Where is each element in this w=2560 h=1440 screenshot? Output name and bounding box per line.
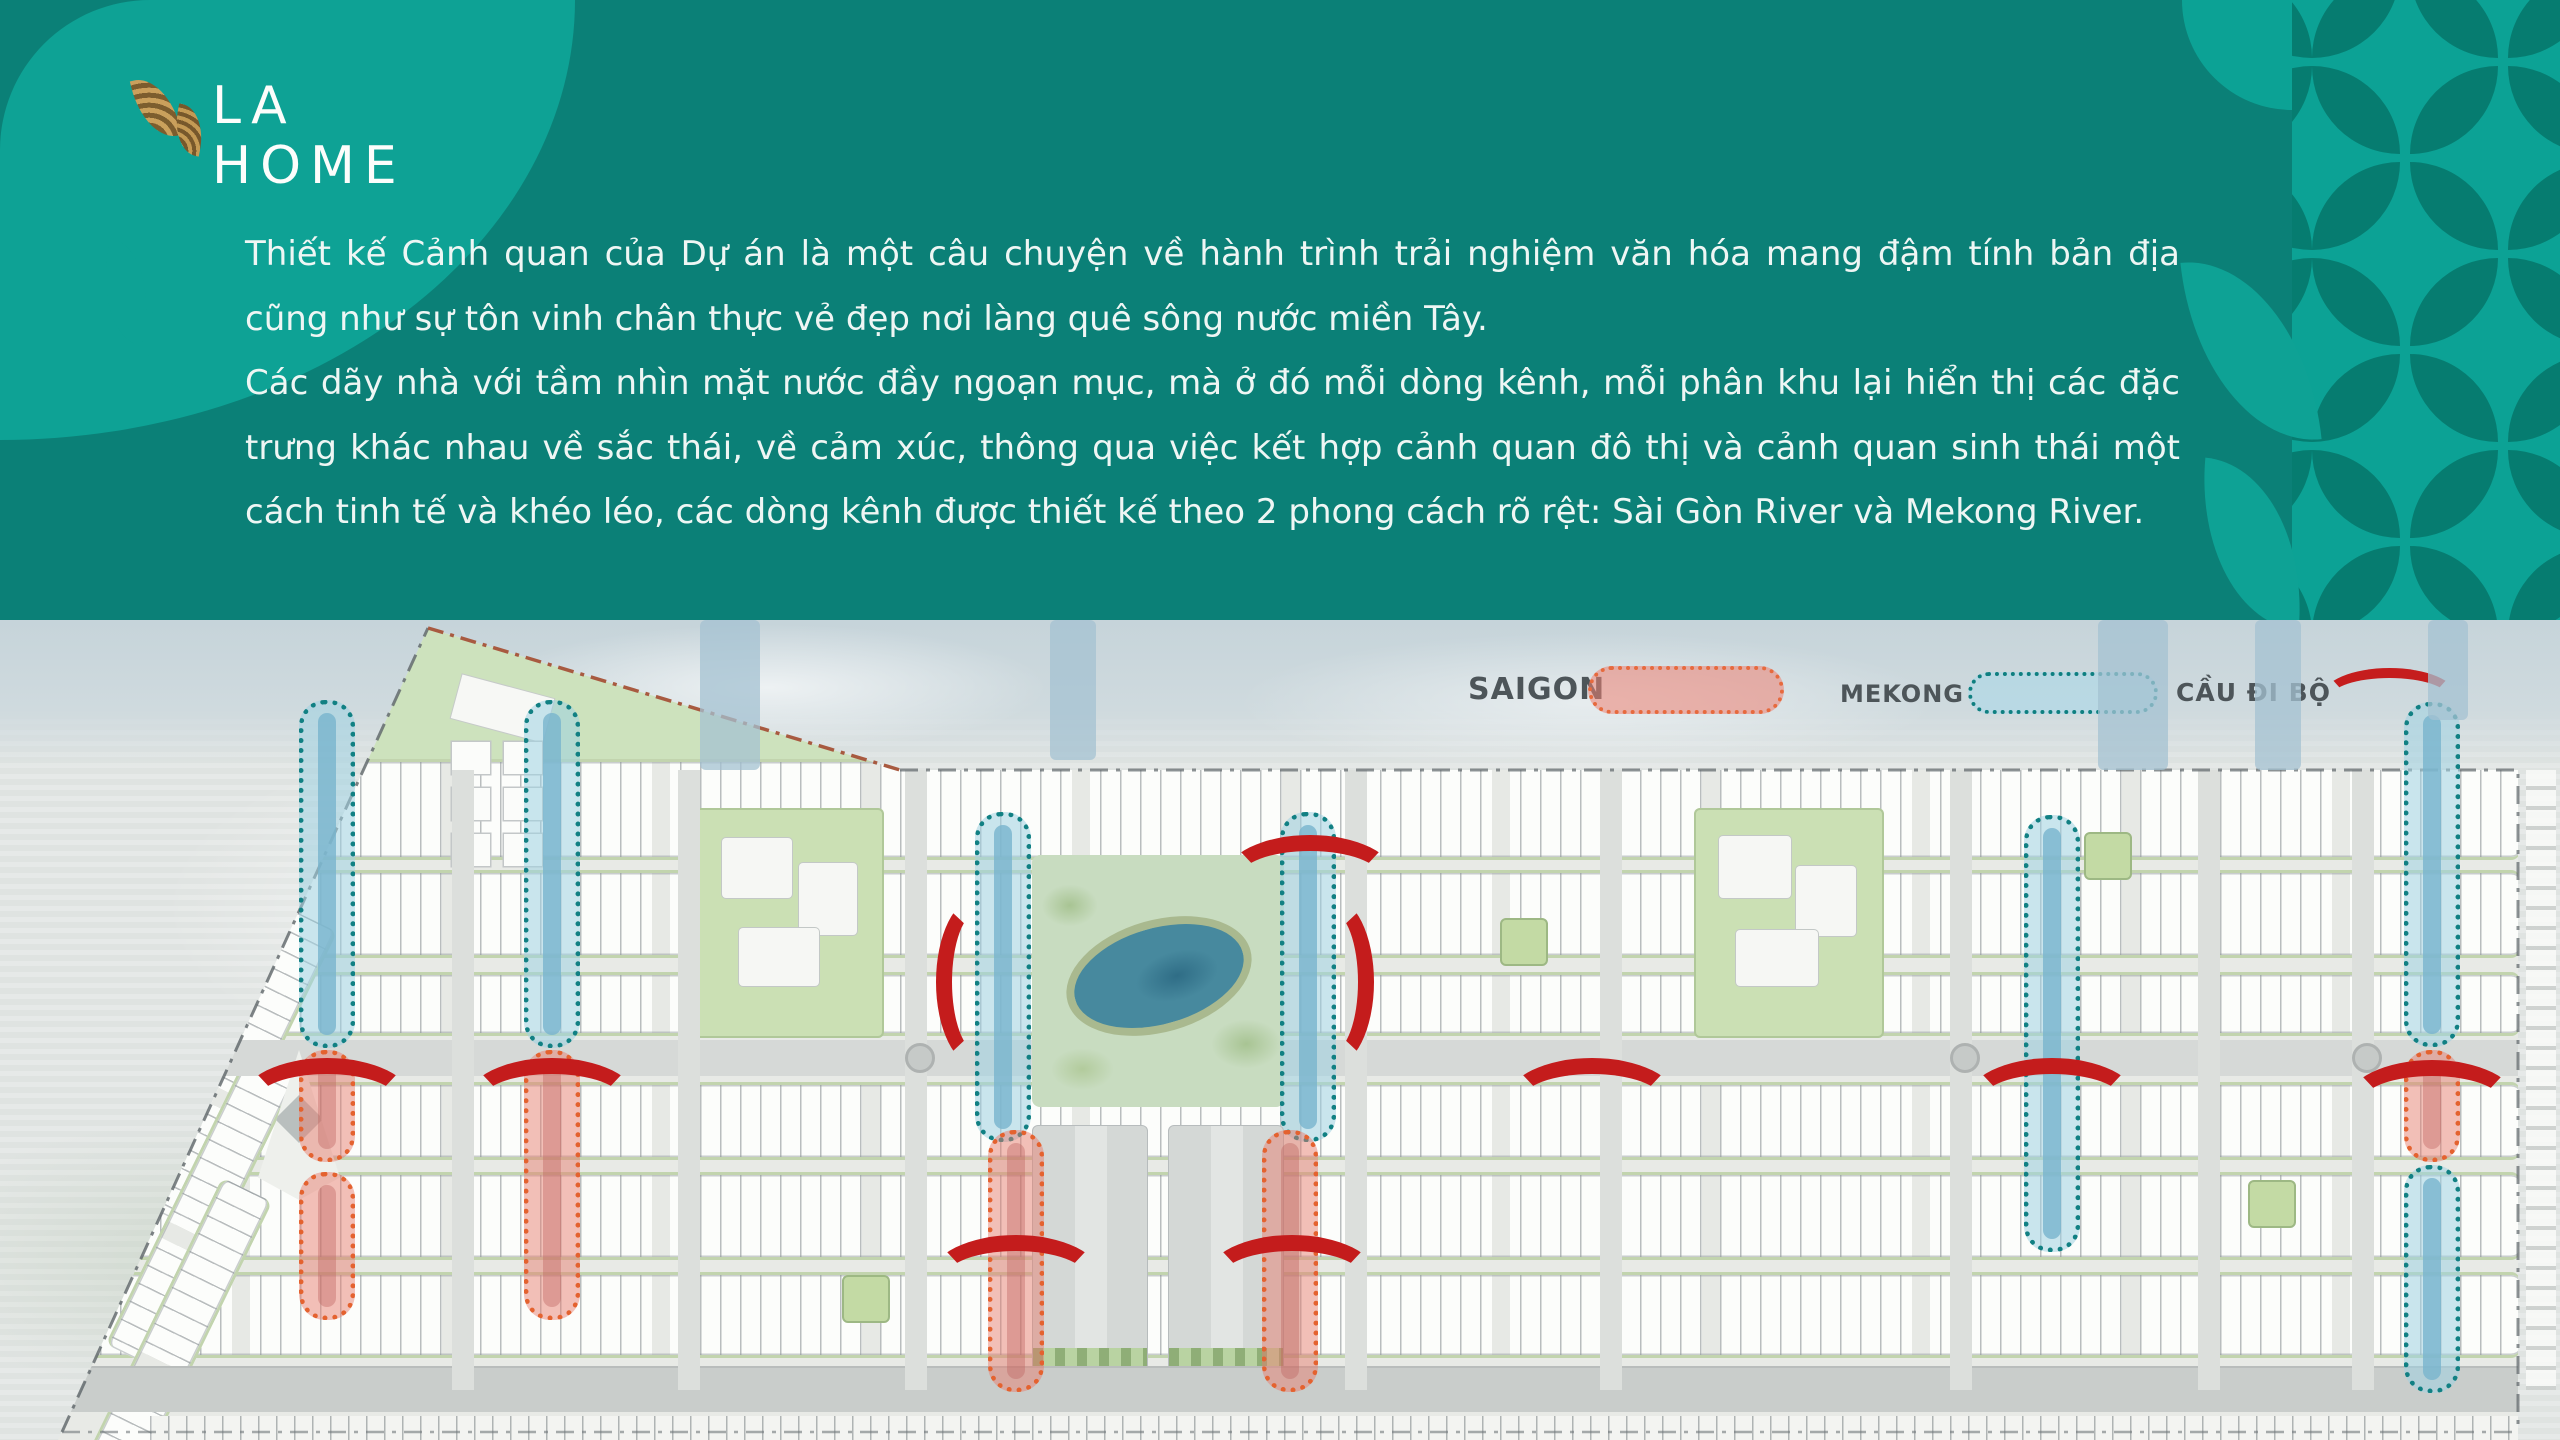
pedestrian-bridge-arc (936, 897, 1020, 1067)
housing-row-bottom (150, 1416, 2520, 1440)
leaf-pattern-icon (2312, 450, 2400, 538)
leaf-pattern-icon (2292, 162, 2312, 250)
legend-saigon-swatch (1588, 666, 1784, 714)
canal-water (2423, 1178, 2441, 1380)
leaf-pattern-icon (2292, 258, 2312, 346)
river-tributary (2428, 620, 2468, 720)
canal-water (318, 713, 336, 1035)
intro-text-block: Thiết kế Cảnh quan của Dự án là một câu … (245, 222, 2180, 545)
leaf-pattern-strip (2292, 0, 2560, 620)
canal-mekong (299, 700, 355, 1048)
leaf-pattern-icon (2508, 258, 2560, 346)
legend-saigon-label: SAIGON (1468, 672, 1605, 707)
pocket-park (842, 1275, 890, 1323)
leaf-pattern-icon (2312, 546, 2400, 620)
leaf-pattern-icon (2508, 162, 2560, 250)
canal-saigon (299, 1172, 355, 1320)
leaf-pattern-icon (2410, 450, 2498, 538)
pedestrian-bridge-arc (2347, 1060, 2517, 1144)
leaf-pattern-icon (2410, 258, 2498, 346)
leaf-pattern-icon (2292, 66, 2312, 154)
brand-name: LA HOME (212, 76, 406, 196)
street (678, 770, 700, 1390)
roundabout (905, 1043, 935, 1073)
intro-paragraph-1: Thiết kế Cảnh quan của Dự án là một câu … (245, 222, 2180, 351)
river-tributary (1050, 620, 1096, 760)
street (905, 770, 927, 1390)
master-plan-map: SAIGON MEKONG CẦU ĐI BỘ (0, 620, 2560, 1440)
leaf-pattern-icon (2292, 0, 2312, 58)
canal-water (318, 1185, 336, 1307)
leaf-pattern-icon (2410, 354, 2498, 442)
legend-bridge-label: CẦU ĐI BỘ (2176, 678, 2331, 707)
leaf-pattern-icon (2508, 450, 2560, 538)
legend-mekong-label: MEKONG (1840, 680, 1964, 708)
green-park-left (694, 808, 884, 1038)
leaf-pattern-icon (2508, 66, 2560, 154)
leaf-pattern-icon (2312, 162, 2400, 250)
pedestrian-bridge-arc (1207, 1235, 1377, 1319)
leaf-pattern-icon (2508, 0, 2560, 58)
street (452, 770, 474, 1390)
street (2198, 770, 2220, 1390)
pedestrian-bridge-arc (1507, 1058, 1677, 1142)
pedestrian-bridge-arc (1967, 1058, 2137, 1142)
leaf-pattern-icon (2292, 450, 2312, 538)
green-park-right (1694, 808, 1884, 1038)
canal-mekong (524, 700, 580, 1048)
leaf-pattern-icon (2312, 258, 2400, 346)
leaf-pattern-icon (2410, 66, 2498, 154)
roundabout (1950, 1043, 1980, 1073)
leaf-pattern-icon (2312, 0, 2400, 58)
river-tributary (700, 620, 760, 770)
river-tributary (2098, 620, 2168, 770)
leaf-pattern-icon (2410, 0, 2498, 58)
canal-water (543, 713, 561, 1035)
canal-mekong (2404, 1165, 2460, 1393)
intro-paragraph-2: Các dãy nhà với tầm nhìn mặt nước đầy ng… (245, 351, 2180, 545)
pedestrian-bridge-arc (1225, 835, 1395, 919)
leaf-pattern-icon (2508, 354, 2560, 442)
leaf-pattern-icon (2312, 354, 2400, 442)
pedestrian-bridge-arc (1290, 897, 1374, 1067)
pocket-park (2248, 1180, 2296, 1228)
pedestrian-bridge-arc (931, 1235, 1101, 1319)
pocket-park (1500, 918, 1548, 966)
street (1950, 770, 1972, 1390)
leaf-pattern-icon (2508, 546, 2560, 620)
pedestrian-bridge-arc (242, 1058, 412, 1142)
canal-mekong (2024, 815, 2080, 1252)
river-tributary (2255, 620, 2301, 770)
canal-water (2423, 715, 2441, 1034)
pedestrian-bridge-arc (467, 1058, 637, 1142)
page-background: LA HOME Thiết kế Cảnh quan của Dự án là … (0, 0, 2560, 1440)
canal-water (2043, 828, 2061, 1239)
canal-mekong (2404, 702, 2460, 1047)
leaf-pattern-icon (2312, 66, 2400, 154)
leaf-pattern-icon (2410, 162, 2498, 250)
strip-corner-curve (2182, 0, 2292, 110)
pocket-park (2084, 832, 2132, 880)
leaf-pattern-icon (2410, 546, 2498, 620)
housing-row-east (2526, 770, 2556, 1390)
